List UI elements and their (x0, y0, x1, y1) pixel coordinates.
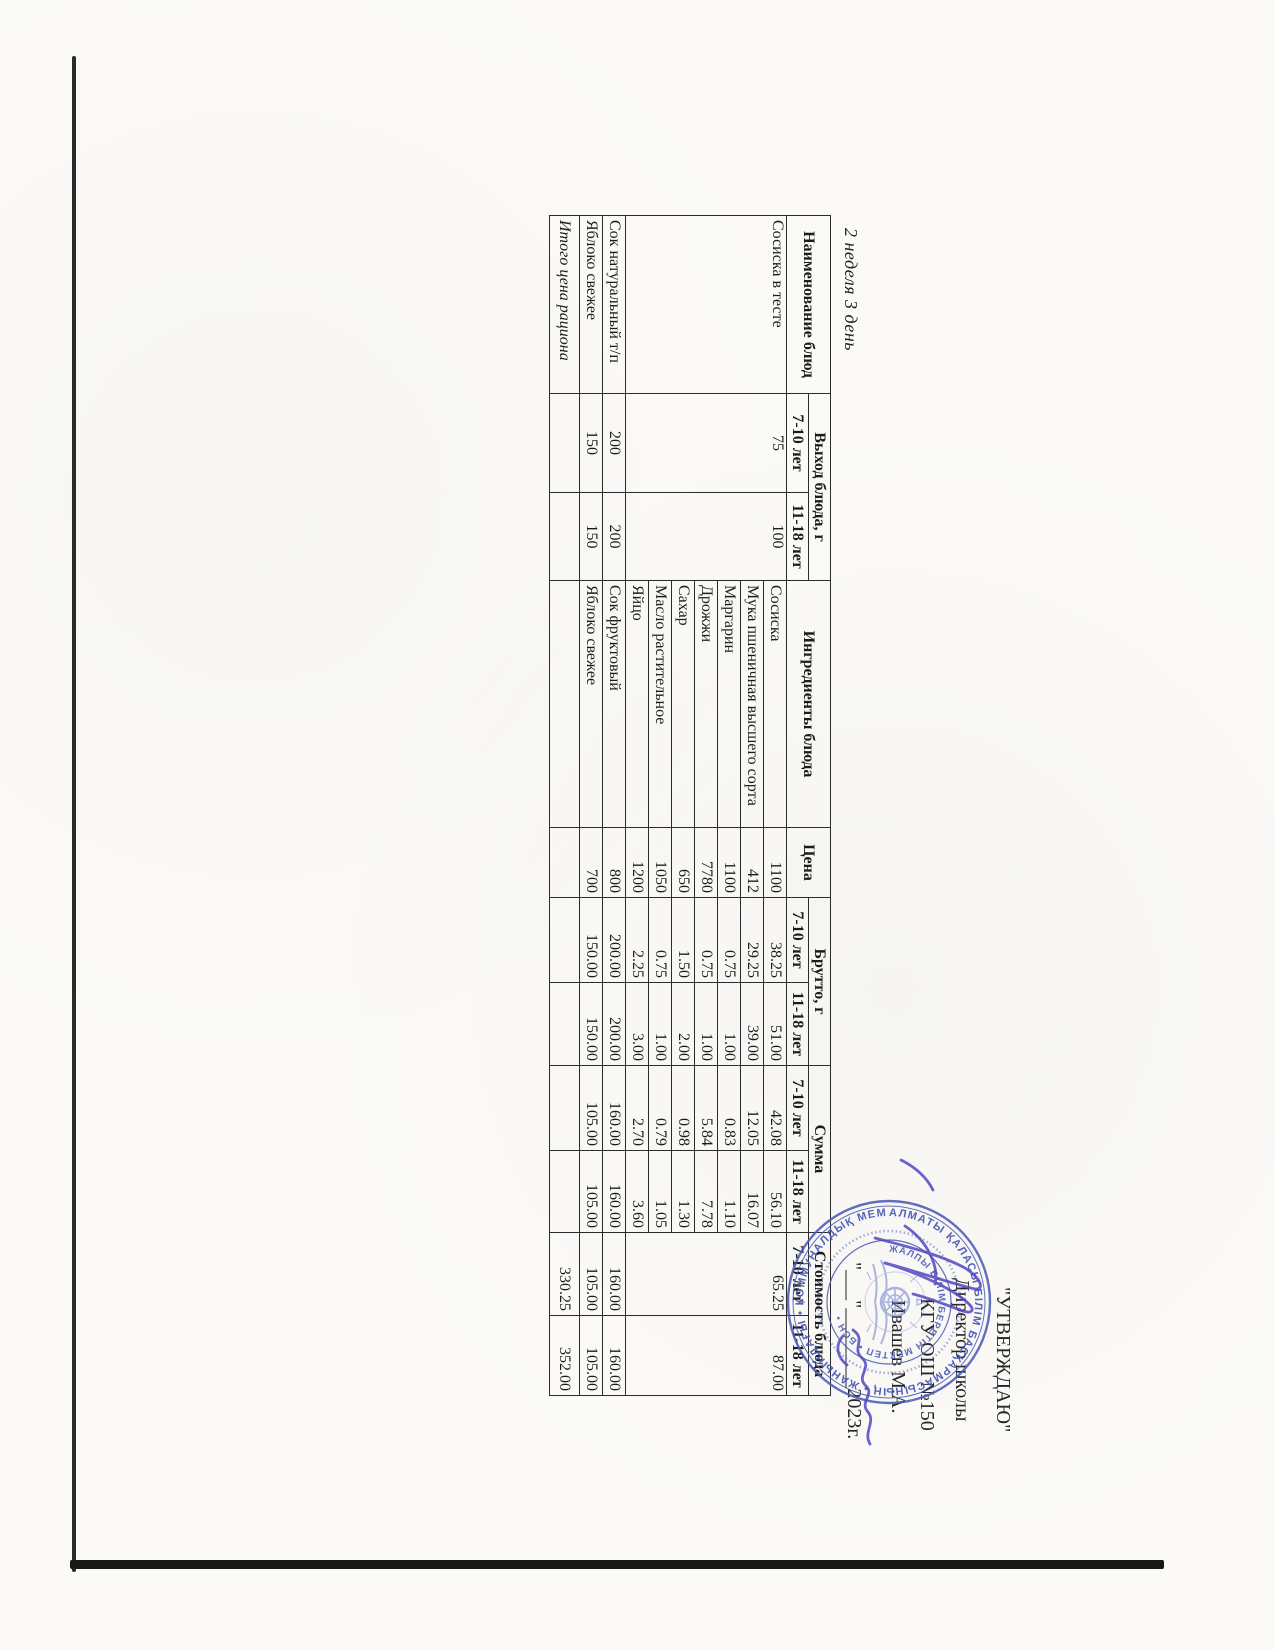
menu-cell: 1100 (764, 828, 787, 898)
menu-cell: 160.00 (603, 1151, 626, 1233)
menu-cell: 1.50 (672, 898, 695, 983)
menu-cell: 100 (626, 493, 787, 581)
menu-cell: 150.00 (580, 983, 603, 1066)
menu-cell: 1.00 (649, 983, 672, 1066)
menu-cell (550, 394, 580, 493)
menu-cell: 42.08 (764, 1066, 787, 1151)
scanned-document-page: { "page": { "title": "2 неделя 3 день" }… (0, 0, 1275, 1650)
menu-cell (550, 983, 580, 1066)
menu-cell: 0.98 (672, 1066, 695, 1151)
menu-cell (550, 581, 580, 828)
menu-cell: 1100 (718, 828, 741, 898)
menu-cell: 105.00 (580, 1151, 603, 1233)
menu-cell (550, 828, 580, 898)
menu-cell: 150 (580, 493, 603, 581)
menu-cell: Сок фруктовый (603, 581, 626, 828)
menu-cell: 1.10 (718, 1151, 741, 1233)
signature-ink (815, 1140, 1025, 1490)
menu-cell: Сахар (672, 581, 695, 828)
menu-cell: Мука пшеничная высшего сорта (741, 581, 764, 828)
menu-header-cell: 11-18 лет (787, 493, 809, 581)
menu-cell: 51.00 (764, 983, 787, 1066)
menu-cell: 160.00 (603, 1233, 626, 1316)
menu-cell: Яйцо (626, 581, 649, 828)
scan-edge-bottom (70, 1560, 1164, 1569)
menu-cell: 1.30 (672, 1151, 695, 1233)
menu-cell: 2.25 (626, 898, 649, 983)
menu-cell: 0.79 (649, 1066, 672, 1151)
menu-cell: 0.75 (718, 898, 741, 983)
menu-cell: 105.00 (580, 1066, 603, 1151)
menu-cell: 7780 (695, 828, 718, 898)
rotated-document-content: 2 неделя 3 день Наименование блюдВыход б… (0, 0, 1275, 1650)
menu-cell: 200 (603, 394, 626, 493)
menu-cell: 200.00 (603, 898, 626, 983)
menu-cell (550, 1066, 580, 1151)
menu-cell: 1200 (626, 828, 649, 898)
menu-header-cell: Ингредиенты блюда (787, 581, 831, 828)
stamp-star-icon: * (791, 1299, 808, 1305)
menu-cell: 0.75 (649, 898, 672, 983)
menu-cell: 1.00 (718, 983, 741, 1066)
menu-cell: 65.25 (626, 1233, 787, 1316)
menu-cell: 29.25 (741, 898, 764, 983)
menu-cell: 38.25 (764, 898, 787, 983)
menu-cell: 105.00 (580, 1233, 603, 1316)
menu-cell: 200.00 (603, 983, 626, 1066)
menu-header-cell: Наименование блюд (787, 216, 831, 394)
menu-cell: 1050 (649, 828, 672, 898)
menu-cell: 330.25 (550, 1233, 580, 1316)
menu-cell: 412 (741, 828, 764, 898)
menu-header-cell: 7-10 лет (787, 1066, 809, 1151)
menu-cell: Яблоко свежее (580, 581, 603, 828)
menu-cell: 2.70 (626, 1066, 649, 1151)
menu-header-cell: Цена (787, 828, 831, 898)
menu-cell: 352.00 (550, 1316, 580, 1396)
menu-cell: Сосиска в тесте (626, 216, 787, 394)
menu-cell: 200 (603, 493, 626, 581)
menu-cell: Сок натуральный т/п (603, 216, 626, 394)
menu-cell: 5.84 (695, 1066, 718, 1151)
menu-cell: 150.00 (580, 898, 603, 983)
week-day-title: 2 неделя 3 день (840, 228, 861, 351)
menu-cell: Сосиска (764, 581, 787, 828)
menu-cell: 160.00 (603, 1066, 626, 1151)
menu-cell: 16.07 (741, 1151, 764, 1233)
menu-cell: Маргарин (718, 581, 741, 828)
menu-cell: 1.05 (649, 1151, 672, 1233)
menu-cell: Дрожжи (695, 581, 718, 828)
menu-cell: Масло растительное (649, 581, 672, 828)
menu-cell (550, 493, 580, 581)
scan-edge-left (72, 56, 76, 1572)
menu-cell (550, 898, 580, 983)
menu-cell: 160.00 (603, 1316, 626, 1396)
menu-cell: Итого цена рациона (550, 216, 580, 394)
menu-cell: 1.00 (695, 983, 718, 1066)
menu-cell: 2.00 (672, 983, 695, 1066)
menu-cell: 105.00 (580, 1316, 603, 1396)
menu-cell: 800 (603, 828, 626, 898)
menu-cell: 0.75 (695, 898, 718, 983)
menu-cell: 0.83 (718, 1066, 741, 1151)
menu-cell: 75 (626, 394, 787, 493)
menu-cell: 3.60 (626, 1151, 649, 1233)
menu-cell: 39.00 (741, 983, 764, 1066)
menu-header-cell: Выход блюда, г (809, 394, 831, 581)
menu-cell: 650 (672, 828, 695, 898)
menu-header-cell: Брутто, г (809, 898, 831, 1066)
menu-cell: 87.00 (626, 1316, 787, 1396)
menu-cell (550, 1151, 580, 1233)
menu-header-cell: 7-10 лет (787, 394, 809, 493)
menu-header-cell: 11-18 лет (787, 983, 809, 1066)
menu-cell: Яблоко свежее (580, 216, 603, 394)
menu-cell: 12.05 (741, 1066, 764, 1151)
menu-cell: 3.00 (626, 983, 649, 1066)
menu-header-cell: 7-10 лет (787, 898, 809, 983)
menu-cell: 700 (580, 828, 603, 898)
menu-cell: 150 (580, 394, 603, 493)
menu-cell: 7.78 (695, 1151, 718, 1233)
